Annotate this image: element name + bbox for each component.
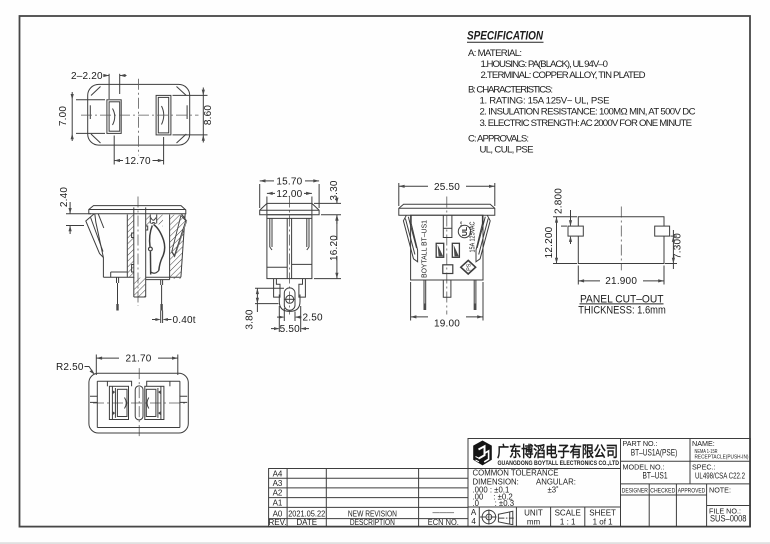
svg-text:2021.05.22: 2021.05.22	[288, 509, 326, 518]
svg-text:A4: A4	[273, 469, 283, 478]
svg-text:DESCRIPTION: DESCRIPTION	[350, 518, 395, 527]
svg-text:15.70: 15.70	[276, 176, 302, 187]
svg-text:12.200: 12.200	[544, 226, 555, 258]
svg-text:SUS–0008: SUS–0008	[710, 514, 747, 524]
svg-text:A: A	[471, 508, 477, 517]
svg-text:1 of 1: 1 of 1	[593, 518, 614, 527]
svg-text:A: MATERIAL:: A: MATERIAL:	[468, 48, 522, 59]
svg-text:us: us	[458, 221, 463, 225]
svg-text:3.80: 3.80	[245, 309, 256, 330]
svg-text:BT–US1: BT–US1	[643, 471, 668, 481]
svg-text:ECN NO.: ECN NO.	[428, 518, 459, 527]
svg-text:2.TERMINAL: COPPER ALLOY, T: 2.TERMINAL: COPPER ALLOY, TIN PLATED	[481, 70, 646, 81]
svg-text:COMMON TOLERANCE: COMMON TOLERANCE	[473, 469, 559, 478]
svg-text:———: ———	[433, 508, 455, 517]
svg-text:NAME:: NAME:	[692, 439, 715, 448]
svg-text:±3˚: ±3˚	[548, 485, 560, 494]
svg-text:2. INSULATION RESISTANCE: 1: 2. INSULATION RESISTANCE: 100MΩ MIN, AT …	[480, 107, 696, 118]
svg-text:RECEPTACLE(PUSH-IN): RECEPTACLE(PUSH-IN)	[695, 455, 749, 461]
svg-text:BT–US1A(PSE): BT–US1A(PSE)	[631, 448, 678, 458]
svg-text:UL, CUL, PSE: UL, CUL, PSE	[480, 144, 534, 155]
svg-text:2–2.20: 2–2.20	[71, 71, 103, 82]
svg-text:B: CHARACTERISTICS:: B: CHARACTERISTICS:	[468, 85, 553, 96]
svg-text:8.60: 8.60	[203, 105, 214, 126]
svg-text:4: 4	[471, 517, 476, 526]
svg-text:3. ELECTRIC STRENGTH: AC 2: 3. ELECTRIC STRENGTH: AC 2000V FOR ONE M…	[480, 118, 693, 129]
svg-text:19.00: 19.00	[434, 318, 460, 329]
svg-text:THICKNESS: 1.6mm: THICKNESS: 1.6mm	[578, 304, 666, 316]
svg-text:NOTE:: NOTE:	[709, 486, 731, 495]
svg-text:A1: A1	[273, 498, 283, 507]
svg-text:PS: PS	[466, 263, 472, 271]
svg-text:SPECIFICATION: SPECIFICATION	[467, 29, 544, 43]
svg-text:12.00: 12.00	[276, 189, 302, 200]
svg-text:GUANGDONG BOYTALL ELECTRONICS: GUANGDONG BOYTALL ELECTRONICS CO.,LTD	[498, 460, 620, 467]
svg-text:R2.50: R2.50	[56, 362, 84, 373]
svg-text:A2: A2	[273, 489, 283, 498]
svg-text:15A 125VAC: 15A 125VAC	[468, 221, 477, 252]
svg-text:NEW REVISION: NEW REVISION	[348, 509, 397, 518]
svg-text:25.50: 25.50	[434, 182, 460, 193]
svg-text:1 : 1: 1 : 1	[560, 518, 576, 527]
svg-text:DESIGNER: DESIGNER	[622, 488, 648, 495]
svg-text:APPROVED: APPROVED	[678, 488, 706, 495]
svg-text:mm: mm	[527, 518, 541, 527]
svg-text:2.40: 2.40	[59, 187, 70, 208]
svg-text:SCALE: SCALE	[555, 509, 581, 518]
svg-text:广东博滔电子有限公司: 广东博滔电子有限公司	[497, 443, 618, 461]
svg-text:BOYTALL BT–US1: BOYTALL BT–US1	[420, 220, 429, 278]
svg-text:.0 : ±0.3: .0 : ±0.3	[473, 499, 515, 508]
svg-text:A0: A0	[273, 509, 283, 518]
svg-text:A3: A3	[273, 479, 283, 488]
svg-text:2.50: 2.50	[303, 313, 324, 324]
svg-text:3.30: 3.30	[329, 180, 340, 201]
svg-text:SHEET: SHEET	[589, 509, 616, 518]
svg-text:C: APPROVALS:: C: APPROVALS:	[468, 134, 529, 145]
svg-text:UNIT: UNIT	[524, 509, 543, 518]
svg-text:12.70: 12.70	[125, 156, 151, 167]
svg-text:CHECKED: CHECKED	[650, 488, 675, 495]
svg-text:21.900: 21.900	[605, 276, 637, 287]
svg-text:2.800: 2.800	[554, 188, 565, 214]
svg-text:5.50: 5.50	[280, 324, 301, 335]
svg-text:0.40t: 0.40t	[173, 315, 196, 326]
svg-text:REV.: REV.	[269, 518, 287, 527]
svg-text:7.300: 7.300	[673, 233, 684, 259]
svg-text:21.70: 21.70	[125, 353, 151, 364]
svg-text:1.HOUSING: PA(BLACK), UL 94: 1.HOUSING: PA(BLACK), UL 94V–0	[481, 59, 609, 70]
svg-text:7.00: 7.00	[58, 106, 69, 127]
svg-text:1. RATING: 15A 125V~ UL,: 1. RATING: 15A 125V~ UL, PSE	[480, 96, 610, 107]
svg-text:SPEC.:: SPEC.:	[692, 463, 716, 472]
svg-text:DATE: DATE	[296, 518, 317, 527]
svg-text:16.20: 16.20	[329, 235, 340, 261]
svg-text:UL498/CSA C22.2: UL498/CSA C22.2	[695, 472, 745, 481]
